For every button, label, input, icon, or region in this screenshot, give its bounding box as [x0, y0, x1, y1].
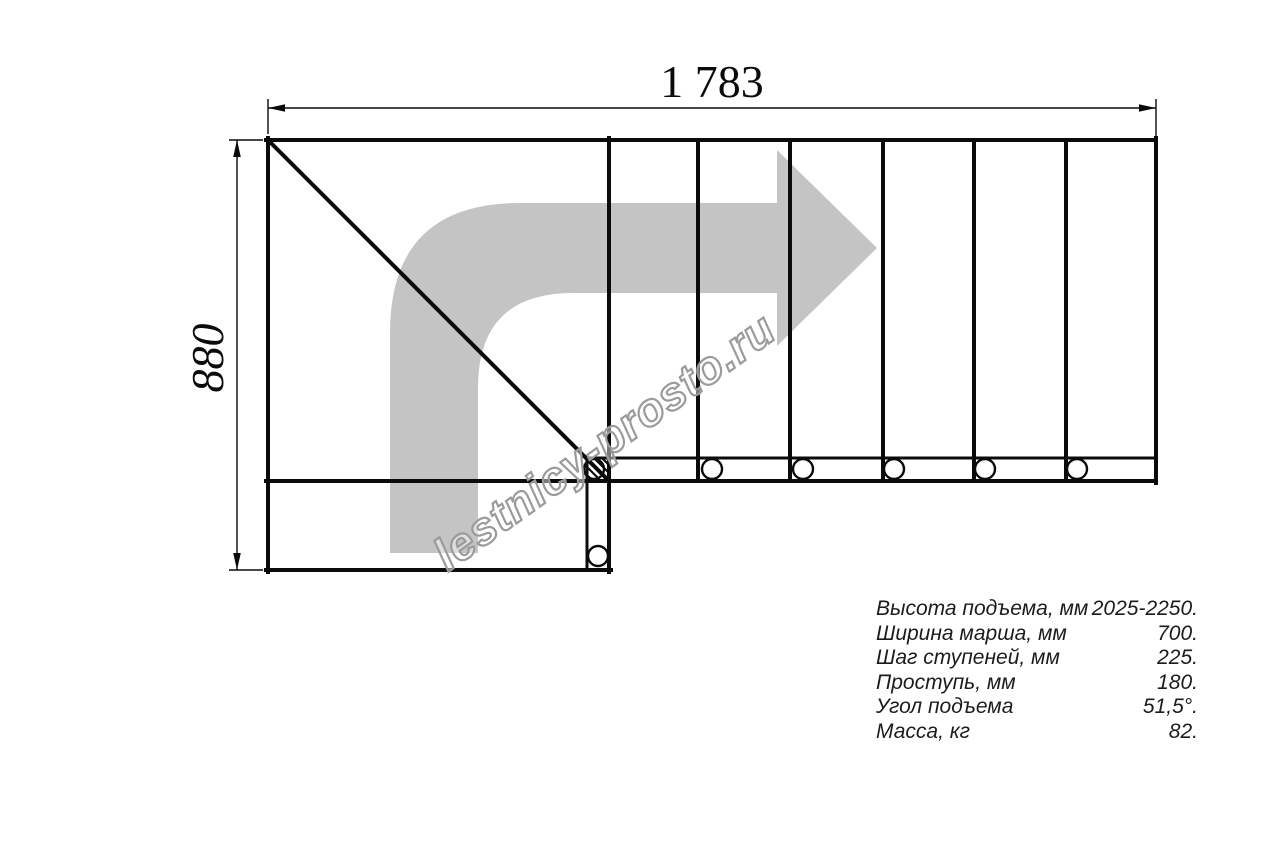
spec-value: 180. — [1157, 671, 1198, 696]
spec-value: 51,5°. — [1143, 695, 1198, 720]
dimension-width: 1 783 — [268, 56, 1156, 136]
screw-hole — [884, 459, 904, 479]
spec-row: Высота подъема, мм 2025-2250. — [876, 597, 1198, 622]
spec-row: Масса, кг 82. — [876, 720, 1198, 745]
spec-value: 2025-2250. — [1092, 597, 1198, 622]
spec-label: Шаг ступеней, мм — [876, 646, 1060, 671]
spec-label: Проступь, мм — [876, 671, 1016, 696]
dimension-arrowhead-top — [233, 140, 241, 157]
dimension-width-label: 1 783 — [660, 56, 764, 107]
dimension-height-label: 880 — [182, 324, 233, 393]
spec-label: Масса, кг — [876, 720, 970, 745]
staircase-drawing-page: 1 783 880 lestnicy-prosto.ru Высота подъ… — [0, 0, 1280, 853]
direction-arrow — [390, 150, 877, 553]
screw-hole — [702, 459, 722, 479]
screw-hole — [588, 546, 608, 566]
screw-hole — [793, 459, 813, 479]
spec-value: 700. — [1157, 622, 1198, 647]
screw-hole — [975, 459, 995, 479]
screw-holes — [584, 459, 1087, 566]
spec-label: Ширина марша, мм — [876, 622, 1067, 647]
spec-row: Ширина марша, мм 700. — [876, 622, 1198, 647]
spec-label: Высота подъема, мм — [876, 597, 1088, 622]
spec-value: 82. — [1169, 720, 1198, 745]
spec-row: Угол подъема 51,5°. — [876, 695, 1198, 720]
spec-label: Угол подъема — [876, 695, 1013, 720]
spec-value: 225. — [1157, 646, 1198, 671]
dimension-arrowhead-left — [268, 104, 285, 112]
spec-row: Шаг ступеней, мм 225. — [876, 646, 1198, 671]
dimension-height: 880 — [182, 140, 263, 570]
spec-table: Высота подъема, мм 2025-2250. Ширина мар… — [876, 597, 1198, 744]
dimension-arrowhead-bottom — [233, 553, 241, 570]
dimension-arrowhead-right — [1139, 104, 1156, 112]
screw-hole — [1067, 459, 1087, 479]
spec-row: Проступь, мм 180. — [876, 671, 1198, 696]
